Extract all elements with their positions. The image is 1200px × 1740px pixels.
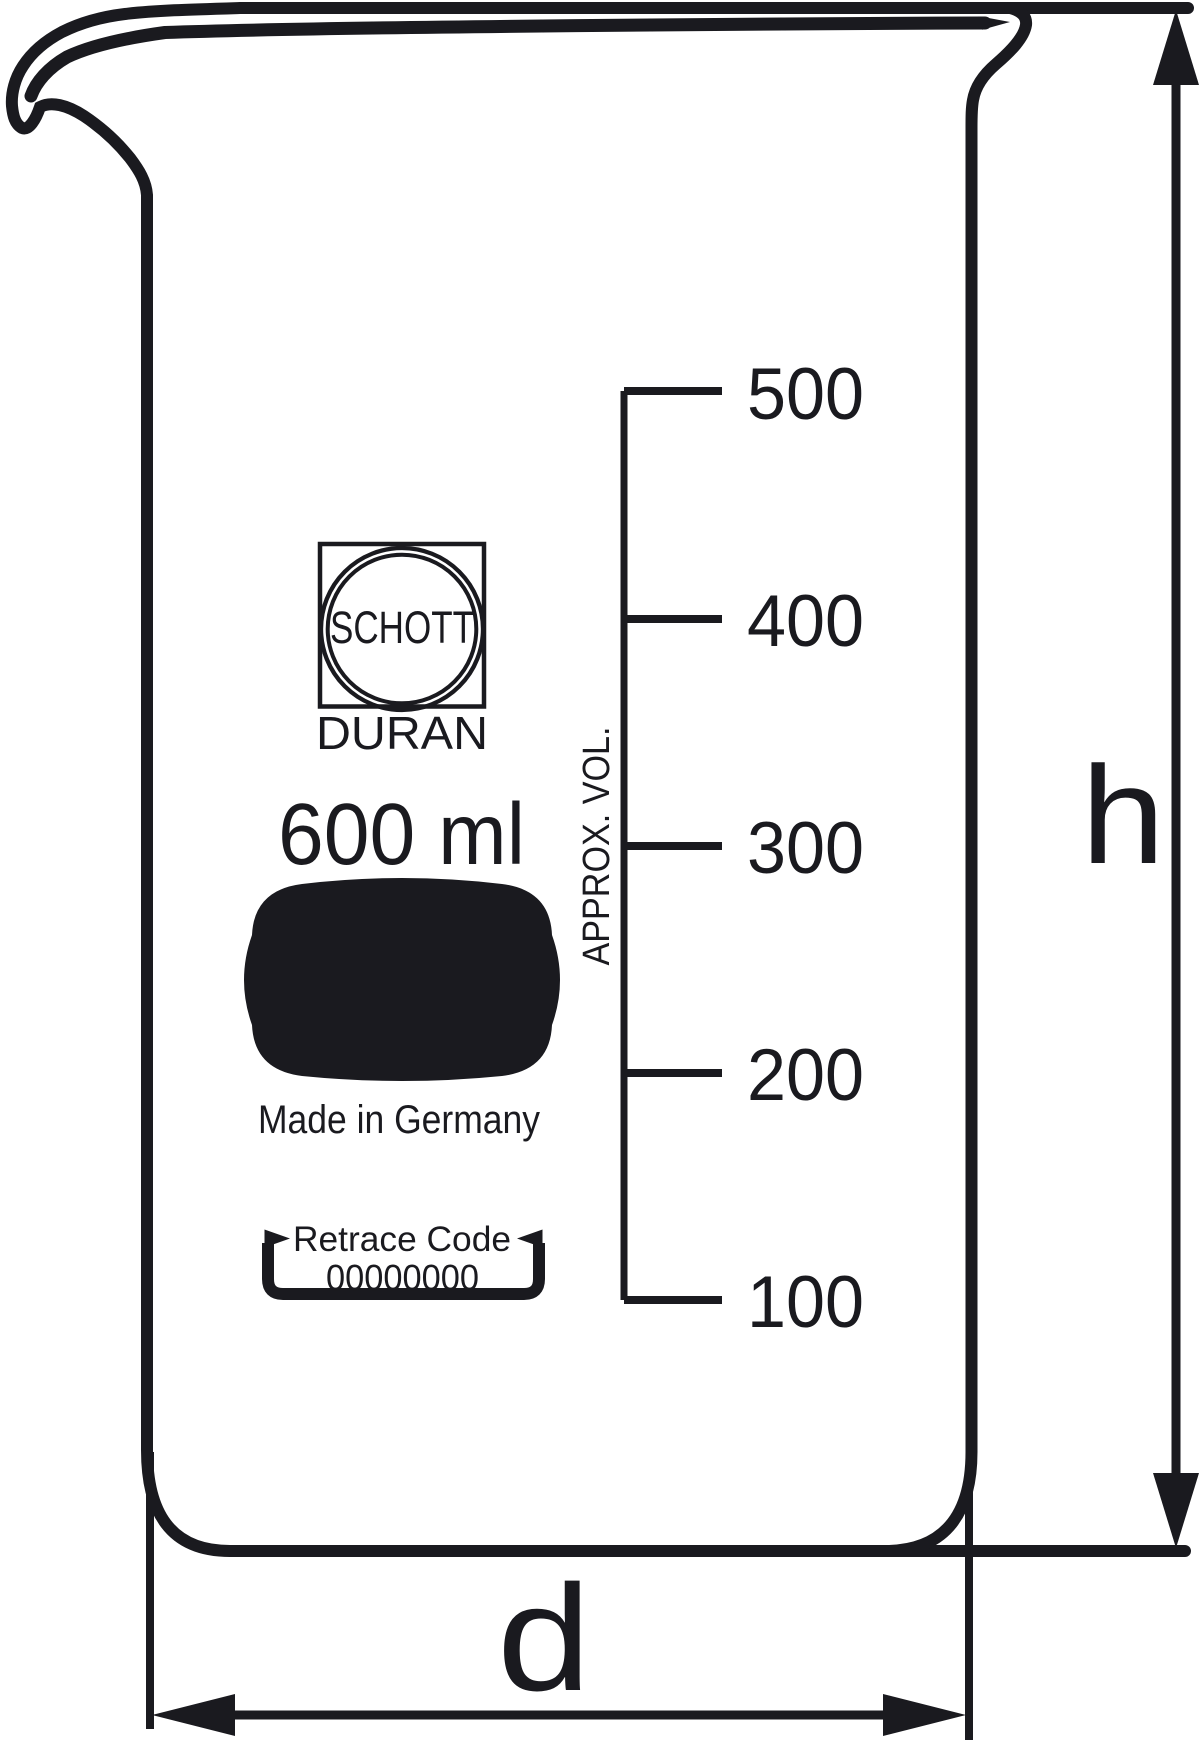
svg-text:300: 300 <box>747 806 864 889</box>
svg-text:Made in Germany: Made in Germany <box>258 1098 540 1142</box>
svg-text:h: h <box>1081 738 1165 893</box>
svg-text:SCHOTT: SCHOTT <box>330 602 474 653</box>
svg-text:APPROX. VOL.: APPROX. VOL. <box>576 727 618 966</box>
svg-text:DURAN: DURAN <box>316 707 488 759</box>
svg-text:Retrace Code: Retrace Code <box>293 1220 511 1259</box>
svg-text:100: 100 <box>747 1260 864 1343</box>
svg-text:200: 200 <box>747 1033 864 1116</box>
svg-text:d: d <box>497 1553 591 1722</box>
svg-text:600 ml: 600 ml <box>278 786 525 883</box>
svg-text:500: 500 <box>747 352 864 435</box>
svg-text:00000000: 00000000 <box>326 1257 479 1298</box>
svg-text:400: 400 <box>747 579 864 662</box>
